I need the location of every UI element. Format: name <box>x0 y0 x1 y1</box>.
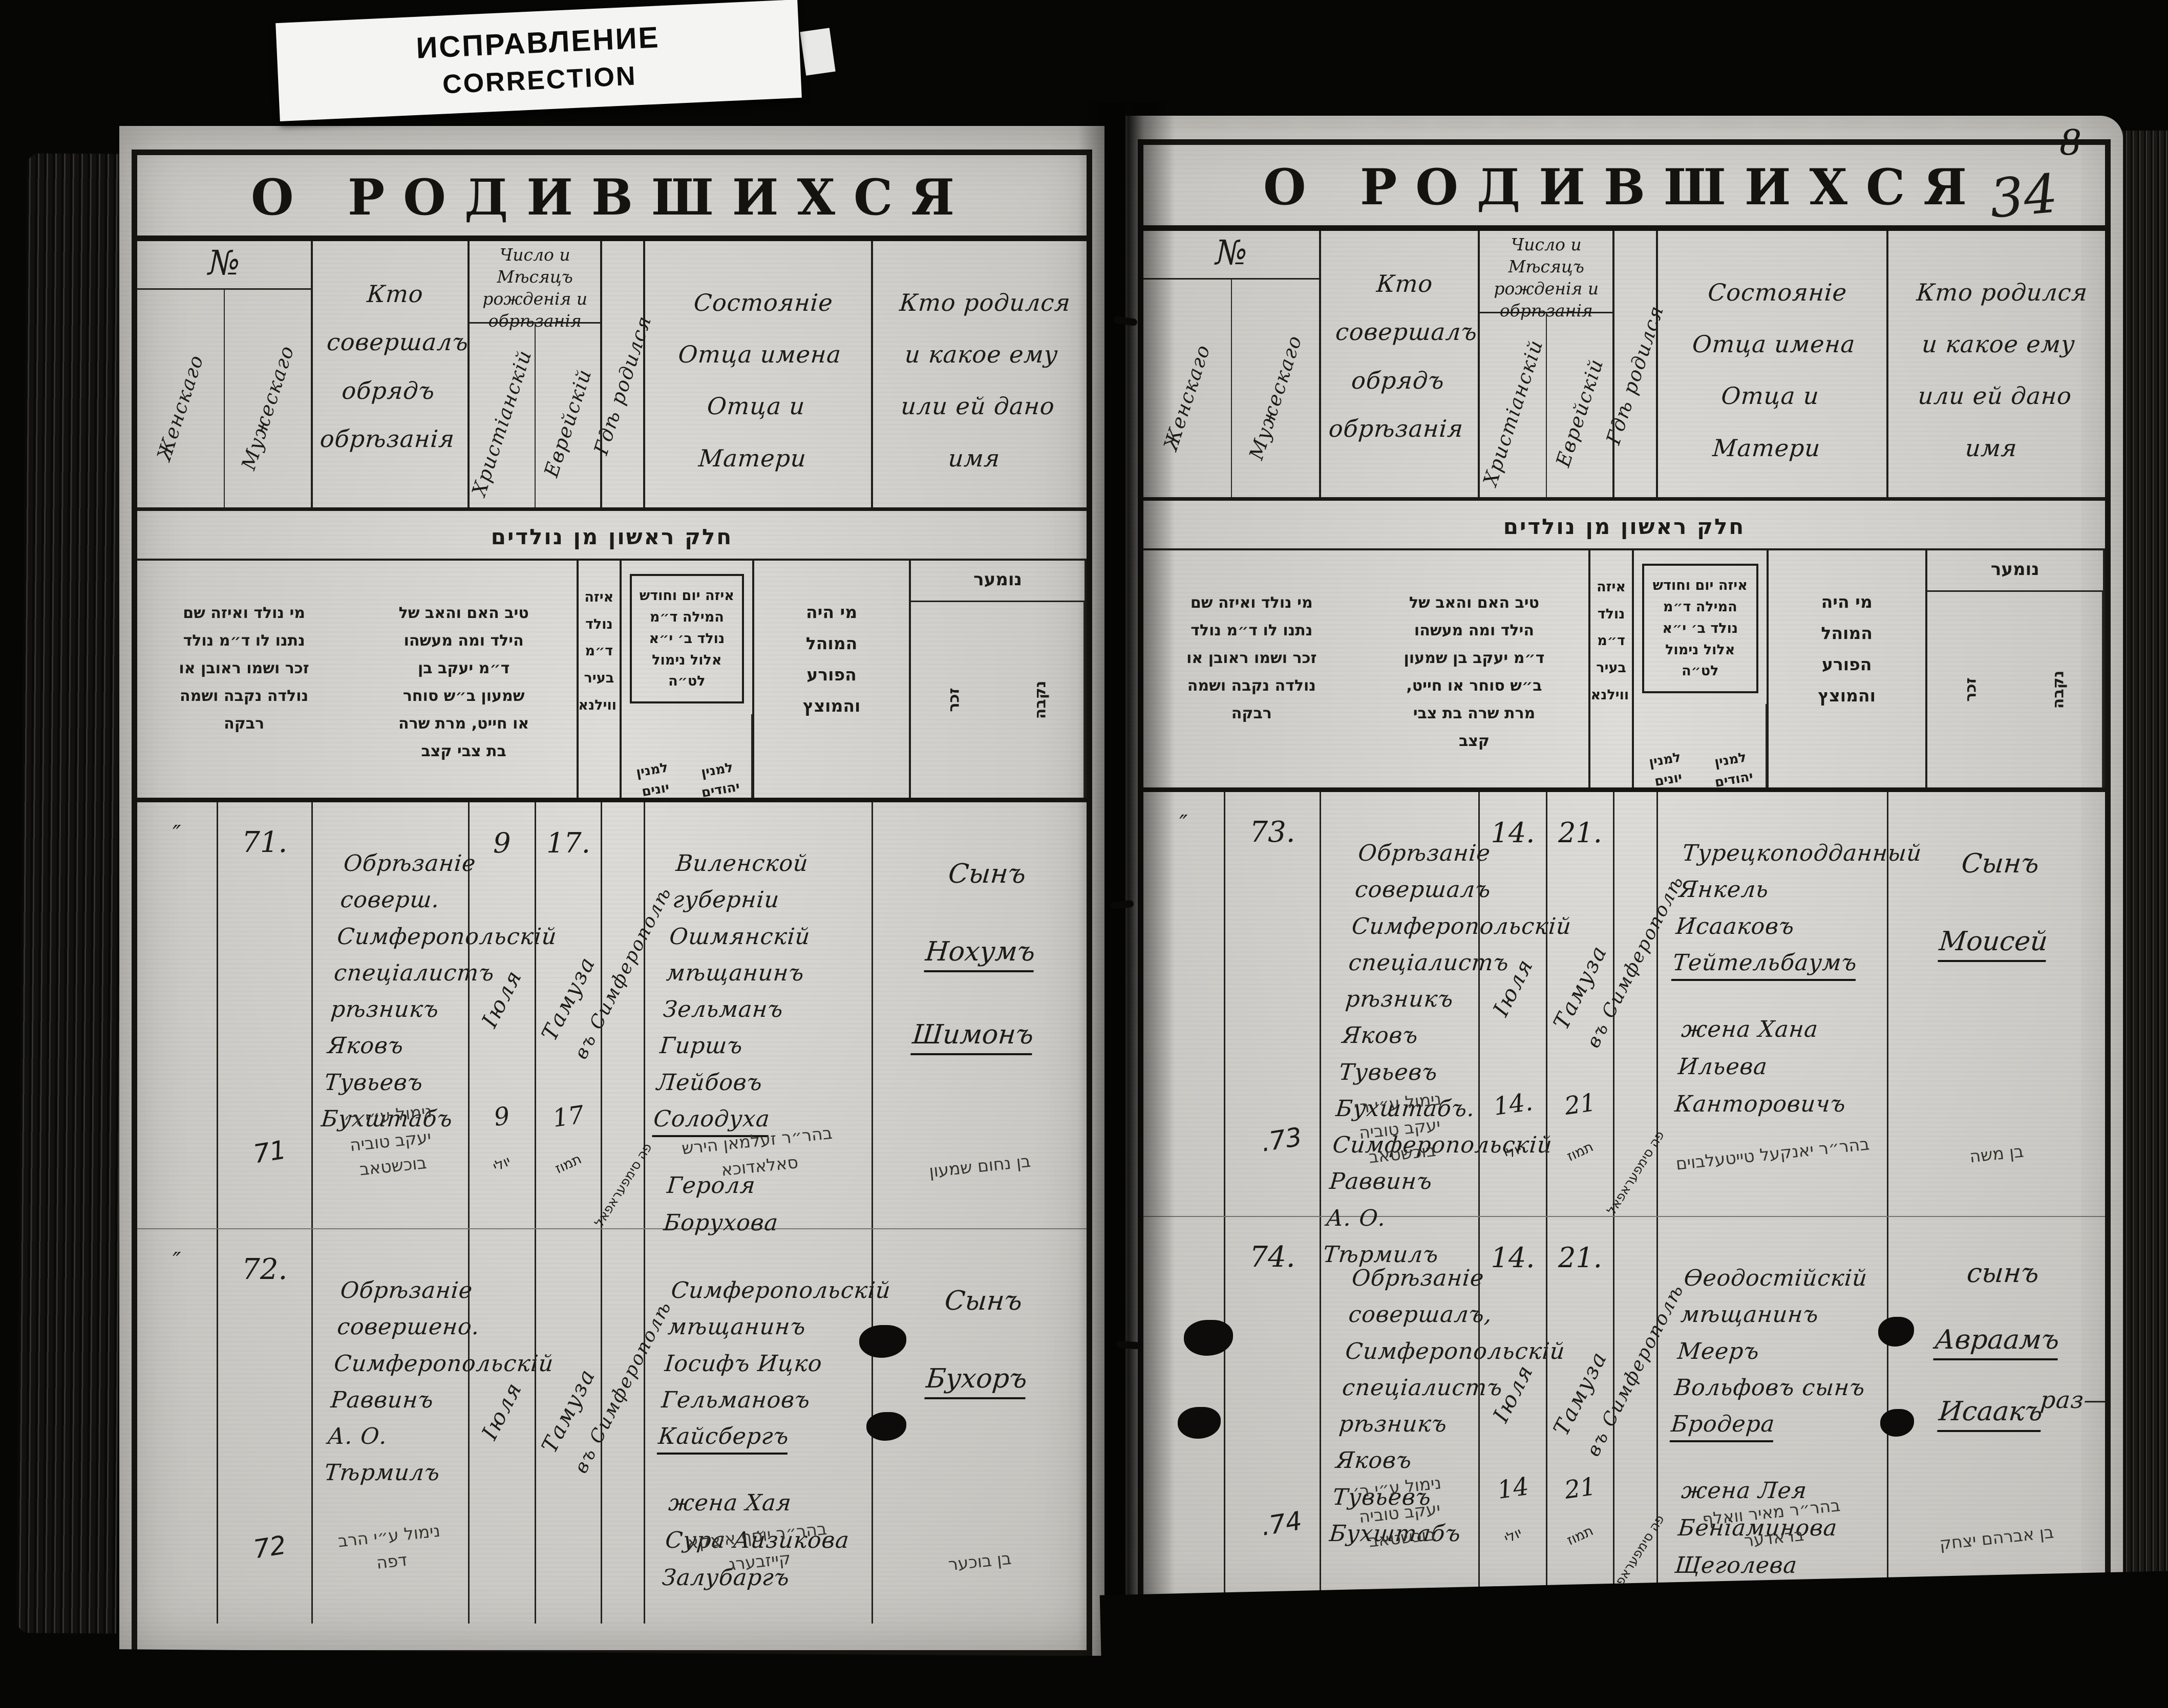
right-page: 34 О РОДИВШИХСЯ № Женскаго Мужескаго Кто… <box>1125 116 2123 1630</box>
hebrew-child-note: מי נולד ואיזה שם נתנו לו ד״מ נולד זכר וש… <box>1184 589 1319 728</box>
scan-bottom-shadow <box>1100 1571 2168 1707</box>
no-header: № <box>137 241 311 290</box>
male-number-cell: 73. 73. <box>1225 792 1322 1216</box>
birthplace-column: Гдѣ родился <box>1614 231 1658 497</box>
child-name: Нохумъ <box>924 936 1036 972</box>
hebrew-child-entry: בן אברהם יצחק <box>1903 1515 2091 1560</box>
male-subcolumn: Мужескаго <box>225 290 311 507</box>
mohel-cell: Обрѣзаніе совершалъ Симферопольскій спец… <box>1321 792 1480 1216</box>
child-cell: Сынъ Моисей בן משה <box>1888 792 2105 1216</box>
jewish-subcolumn: Еврейскій <box>536 324 601 507</box>
child-name: Авраамъ <box>1933 1325 2061 1360</box>
hebrew-where-column: איזה נולד ד״מ בעיר ווילנא <box>1590 550 1634 787</box>
number-column-group: № Женскаго Мужескаго <box>1143 231 1321 497</box>
father-status: Виленской губерніи Ошмянскій мѣщанинъ Зе… <box>655 850 811 1096</box>
hebrew-jewish-day: 17 <box>551 1100 586 1133</box>
hebrew-female-subcolumn: נקבה <box>997 602 1085 798</box>
mohel-cell: Обрѣзаніе совершалъ, Симферопольскій спе… <box>1321 1217 1480 1600</box>
child-name-2: Исаакъ <box>1938 1396 2044 1432</box>
who-was-born-header: Кто родился и какое ему или ей дано имя <box>883 277 1077 484</box>
number-column-group: № Женскаго Мужескаго <box>137 241 313 507</box>
christian-subcolumn: Христіанскій <box>1480 313 1546 497</box>
child-name: Бухоръ <box>924 1363 1028 1399</box>
no-header: № <box>1143 231 1319 280</box>
hebrew-header-band: חלק ראשון מן נולדים נומער נקבה זכר מי הי… <box>137 511 1087 802</box>
russian-header-row: № Женскаго Мужескаго Кто совершалъ обряд… <box>137 241 1087 511</box>
hebrew-jewish-month: תמוז <box>553 1151 584 1177</box>
child-column: Кто родился и какое ему или ей дано имя <box>873 241 1087 507</box>
hebrew-male-header: זכר <box>945 688 963 712</box>
christian-month: Іюля <box>1487 1360 1538 1426</box>
male-header: Мужескаго <box>1245 332 1306 462</box>
hebrew-parents-column: טיב האם והאב של הילד ומה מעשהו ד״מ יעקב … <box>1360 550 1591 787</box>
father-status-header: Состояніе Отца имена Отца и Матери <box>656 277 860 484</box>
mohel-column: Кто совершалъ обрядъ обрѣзанія <box>1321 231 1480 497</box>
hebrew-parents-note: טיב האם והאב של הילד ומה מעשהו ד״מ יעקב … <box>1403 589 1545 755</box>
greek-count-subcolumn: למנין יונים <box>622 714 687 798</box>
mohel-entry: Обрѣзаніе совершено. Симферопольскій Рав… <box>303 1252 479 1491</box>
jewish-day: 21. <box>1558 817 1602 849</box>
who-performed-header: Кто совершалъ обрядъ обрѣзанія <box>318 270 462 463</box>
female-subcolumn: Женскаго <box>1143 280 1232 497</box>
christian-header: Христіанскій <box>1479 337 1547 489</box>
female-number-cell: ″ <box>1143 792 1225 1216</box>
who-performed-header: Кто совершалъ обрядъ обрѣзанія <box>1327 260 1472 453</box>
male-header: Мужескаго <box>237 342 299 473</box>
female-subcolumn: Женскаго <box>137 290 225 507</box>
birthplace-cell: въ Симферополѣ פה סימפעראפאל <box>1614 792 1658 1216</box>
male-number-cell: 74. 74. <box>1225 1217 1322 1600</box>
hebrew-numer-header: נומער <box>1927 550 2103 592</box>
record-number: 74. <box>1225 1241 1320 1274</box>
male-number-cell: 71. 71 <box>218 802 313 1228</box>
greek-count-subcolumn: למנין יונים <box>1634 704 1699 787</box>
hebrew-date-group: איזה יום וחודש המילה ד״מ נולד ב׳ י״א אלו… <box>622 561 755 798</box>
date-column-group: Число и Мѣсяцъ рожденія и обрѣзанія Хрис… <box>1480 231 1614 497</box>
margin-note: раз— <box>2039 1386 2110 1414</box>
jewish-day: 21. <box>1558 1242 1602 1274</box>
hebrew-male-subcolumn: זכר <box>1927 592 2015 787</box>
christian-date-cell: 14. Іюля 14. יולי <box>1480 792 1547 1216</box>
hebrew-jewish-day: 21 <box>1563 1088 1598 1121</box>
birthplace-column: Гдѣ родился <box>602 241 645 507</box>
father-column: Состояніе Отца имена Отца и Матери <box>645 241 873 507</box>
record-number: 73. <box>1225 816 1320 849</box>
christian-day: 9 <box>493 827 511 859</box>
record-row-73: ″ 73. 73. Обрѣзаніе совершалъ Симферопол… <box>1143 792 2105 1217</box>
correction-label-en: CORRECTION <box>442 60 637 100</box>
book-spine-page-edges <box>16 153 126 1633</box>
hebrew-christian-day: 9 <box>492 1101 512 1132</box>
date-column-group: Число и Мѣсяцъ рожденія и обрѣзанія Хрис… <box>470 241 603 507</box>
hebrew-number-group: נומער נקבה זכר <box>911 561 1087 798</box>
father-surname: Тейтельбаумъ <box>1671 950 1858 981</box>
father-surname: Бродера <box>1669 1411 1776 1442</box>
greek-count-header: למנין יונים <box>1641 746 1693 793</box>
hebrew-number-group: נומער נקבה זכר <box>1927 550 2105 787</box>
hebrew-christian-day: 14. <box>1492 1087 1534 1121</box>
hebrew-mohel-column: מי היה המוהל הפורע והמוצץ <box>1769 550 1927 787</box>
hebrew-child-entry: בן נחום שמעון <box>887 1144 1072 1188</box>
hebrew-where-column: איזה נולד ד״מ בעיר ווילנא <box>579 561 621 798</box>
father-cell: Турецкоподданный Янкель Исааковъ Тейтель… <box>1658 792 1889 1216</box>
hebrew-record-number: 73. <box>1259 1122 1304 1158</box>
jewish-count-subcolumn: למנין יהודים <box>1699 704 1766 787</box>
folio-number: 8 <box>2059 123 2081 163</box>
left-page: О РОДИВШИХСЯ № Женскаго Мужескаго Кто со… <box>119 126 1104 1656</box>
female-number-cell <box>1143 1217 1225 1600</box>
mohel-entry: Обрѣзаніе совершалъ Симферопольскій спец… <box>1301 815 1498 1273</box>
father-status: Ѳеодостійскій мѣщанинъ Мееръ Вольфовъ сы… <box>1673 1265 1868 1401</box>
hebrew-child-entry: בן בוכער <box>887 1539 1072 1584</box>
hebrew-record-number: 72 <box>251 1530 288 1564</box>
hebrew-christian-month: יולי <box>491 1153 514 1175</box>
hebrew-child-entry: בן משה <box>1903 1131 2091 1176</box>
father-cell: Ѳеодостійскій мѣщанинъ Мееръ Вольфовъ сы… <box>1658 1217 1889 1600</box>
page-title: О РОДИВШИХСЯ <box>137 155 1087 241</box>
father-status: Симферопольскій мѣщанинъ Іосифъ Ицко Гел… <box>661 1277 892 1413</box>
hebrew-part-title: חלק ראשון מן נולדים <box>137 511 1087 561</box>
jewish-day: 17. <box>546 827 590 859</box>
christian-subcolumn: Христіанскій <box>470 324 536 507</box>
hebrew-female-header: נקבה <box>1031 681 1049 719</box>
mohel-entry: Обрѣзаніе соверш. Симферопольскій спеціа… <box>299 825 481 1137</box>
mohel-column: Кто совершалъ обрядъ обрѣзанія <box>313 241 470 507</box>
date-group-header: Число и Мѣсяцъ рожденія и обрѣзанія <box>470 241 601 324</box>
hebrew-part-title: חלק ראשון מן נולדים <box>1143 501 2105 550</box>
jewish-header: Еврейскій <box>1551 356 1608 470</box>
hebrew-mohel-entry: נימול ע״י ר׳ יעקב טוביה בוכשטאב <box>325 1096 456 1185</box>
christian-date-cell: 9 Іюля 9 יולי <box>470 802 536 1228</box>
child-column: Кто родился и какое ему или ей дано имя <box>1888 231 2105 497</box>
hebrew-child-column: מי נולד ואיזה שם נתנו לו ד״מ נולד זכר וש… <box>137 561 351 798</box>
hebrew-mohel-header: מי היה המוהל הפורע והמוצץ <box>782 596 881 721</box>
father-surname: Кайсбергъ <box>657 1423 790 1455</box>
who-was-born-header: Кто родился и какое ему или ей дано имя <box>1899 267 2095 474</box>
hebrew-date-note: איזה יום וחודש המילה ד״מ נולד ב׳ י״א אלו… <box>630 574 745 703</box>
hebrew-male-header: זכר <box>1962 677 1980 701</box>
hebrew-male-subcolumn: זכר <box>911 602 997 798</box>
hebrew-jewish-month: תמוז <box>1564 1523 1596 1548</box>
father-column: Состояніе Отца имена Отца и Матери <box>1658 231 1889 497</box>
russian-header-row: № Женскаго Мужескаго Кто совершалъ обряд… <box>1143 231 2105 501</box>
father-status: Турецкоподданный Янкель Исааковъ <box>1675 840 1923 940</box>
hebrew-date-note: איזה יום וחודש המילה ד״מ נולד ב׳ י״א אלו… <box>1642 564 1758 693</box>
father-cell: Симферопольскій мѣщанинъ Іосифъ Ицко Гел… <box>645 1229 873 1624</box>
right-register-table: О РОДИВШИХСЯ № Женскаго Мужескаго Кто со… <box>1138 139 2111 1630</box>
female-number-cell: ″ <box>137 1229 218 1624</box>
hebrew-header-band: חלק ראשון מן נולדים נומער נקבה זכר מי הי… <box>1143 501 2105 792</box>
hebrew-mohel-entry: נימול ע״י ר׳ יעקב טוביה בוכשטאב <box>1333 1468 1466 1556</box>
mother-name: жена Хана Ильева Канторовичъ <box>1652 1004 1892 1123</box>
christian-date-cell: 14. Іюля 14 יולי <box>1480 1217 1547 1600</box>
hebrew-female-header: נקבה <box>2049 671 2067 709</box>
hebrew-child-column: מי נולד ואיזה שם נתנו לו ד״מ נולד זכר וש… <box>1143 550 1360 787</box>
hebrew-numer-header: נומער <box>911 561 1085 602</box>
child-prefix: Сынъ <box>947 859 1027 889</box>
hebrew-where-note: איזה נולד ד״מ בעיר ווילנא <box>1593 574 1629 709</box>
jewish-count-subcolumn: למנין יהודים <box>686 714 752 798</box>
record-row-72: ″ 72. 72 Обрѣзаніе совершено. Симферопол… <box>137 1229 1087 1624</box>
hebrew-mohel-column: מי היה המוהל הפורע והמוצץ <box>754 561 911 798</box>
jewish-count-header: למנין יהודים <box>1706 746 1758 793</box>
birthplace-cell: въ Симферополѣ פה סימפעראפאל <box>1614 1217 1658 1600</box>
date-group-header: Число и Мѣсяцъ рожденія и обрѣзанія <box>1480 231 1612 313</box>
hebrew-jewish-day: 21 <box>1563 1472 1598 1505</box>
father-cell: Виленской губерніи Ошмянскій мѣщанинъ Зе… <box>645 802 873 1228</box>
child-name: Моисей <box>1938 926 2049 962</box>
male-number-cell: 72. 72 <box>218 1229 313 1624</box>
left-register-table: О РОДИВШИХСЯ № Женскаго Мужескаго Кто со… <box>132 150 1092 1656</box>
register-scan: { "document": { "correction_label": {"li… <box>0 0 2168 1674</box>
ditto-mark: ″ <box>1143 810 1224 837</box>
ditto-mark: ″ <box>137 1248 217 1274</box>
hebrew-record-number: 74. <box>1259 1506 1304 1542</box>
page-number: 34 <box>1987 162 2060 230</box>
mohel-cell: Обрѣзаніе совершено. Симферопольскій Рав… <box>313 1229 470 1624</box>
hebrew-where-note: איזה נולד ד״מ בעיר ווילנא <box>582 584 617 719</box>
greek-count-header: למנין יונים <box>628 756 680 803</box>
hebrew-record-number: 71 <box>251 1135 288 1169</box>
record-row-74: раз— 74. 74. Обрѣзаніе совершалъ, Симфер… <box>1143 1217 2105 1600</box>
hebrew-parents-column: טיב האם והאב של הילד ומה מעשהו ד״מ יעקב … <box>351 561 579 798</box>
christian-date-cell: Іюля <box>470 1229 536 1624</box>
page-title: О РОДИВШИХСЯ <box>1143 145 2105 231</box>
hebrew-date-group: איזה יום וחודש המילה ד״מ נולד ב׳ י״א אלו… <box>1634 550 1769 787</box>
hebrew-christian-day: 14 <box>1495 1472 1530 1505</box>
hebrew-female-subcolumn: נקבה <box>2014 592 2103 787</box>
binding-stitch <box>1116 1340 1140 1349</box>
child-name-2: Шимонъ <box>910 1019 1034 1055</box>
hebrew-jewish-month: תמוז <box>1564 1139 1596 1164</box>
hebrew-christian-month: יולי <box>1501 1525 1524 1547</box>
jewish-header: Еврейскій <box>540 366 596 480</box>
hebrew-christian-month: יולי <box>1501 1141 1524 1163</box>
christian-header: Христіанскій <box>467 347 536 499</box>
christian-day: 14. <box>1491 1242 1535 1274</box>
hebrew-mohel-header: מי היה המוהל הפורע והמוצץ <box>1797 586 1897 711</box>
child-prefix: Сынъ <box>943 1286 1023 1316</box>
scan-bottom-shadow <box>87 1649 1137 1697</box>
child-cell: Сынъ Нохумъ Шимонъ בן נחום שמעון <box>873 802 1087 1228</box>
ditto-mark: ″ <box>137 821 217 847</box>
hebrew-parents-note: טיב האם והאב של הילד ומה מעשהו ד״מ יעקב … <box>394 600 534 765</box>
correction-card: ИСПРАВЛЕНИЕ CORRECTION <box>275 0 802 121</box>
mohel-cell: Обрѣзаніе соверш. Симферопольскій спеціа… <box>313 802 470 1228</box>
record-number: 71. <box>218 826 311 859</box>
hebrew-mohel-entry: נימול ע״י הרב דפה <box>326 1517 455 1581</box>
hebrew-father-entry: בהר״ר יאנקעל טייטעלבוים <box>1672 1130 1873 1177</box>
jewish-subcolumn: Еврейскій <box>1547 313 1612 497</box>
child-prefix: сынъ <box>1966 1258 2041 1289</box>
jewish-count-header: למנין יהודים <box>693 756 745 803</box>
correction-label-ru: ИСПРАВЛЕНИЕ <box>415 20 660 66</box>
christian-month: Іюля <box>477 965 527 1031</box>
christian-month: Іюля <box>1487 954 1538 1020</box>
hebrew-child-note: מי נולד ואיזה שם נתנו לו ד״מ נולד זכר וש… <box>178 600 310 738</box>
birthplace-cell: въ Симферополѣ פה סימפעראפאל <box>602 802 645 1228</box>
father-status-header: Состояніе Отца имена Отца и Матери <box>1669 267 1876 474</box>
christian-day: 14. <box>1491 817 1535 849</box>
card-fragment <box>800 28 835 75</box>
female-number-cell: ″ <box>137 802 218 1228</box>
record-number: 72. <box>218 1253 311 1286</box>
record-row-71: ″ 71. 71 Обрѣзаніе соверш. Симферопольск… <box>137 802 1087 1229</box>
christian-month: Іюля <box>477 1378 527 1444</box>
hebrew-mohel-entry: נימול ע״י ר׳ יעקב טוביה בוכשטאב <box>1333 1084 1466 1172</box>
female-header: Женскаго <box>1159 341 1215 453</box>
female-header: Женскаго <box>153 351 208 463</box>
child-prefix: Сынъ <box>1961 848 2041 879</box>
male-subcolumn: Мужескаго <box>1232 280 1320 497</box>
